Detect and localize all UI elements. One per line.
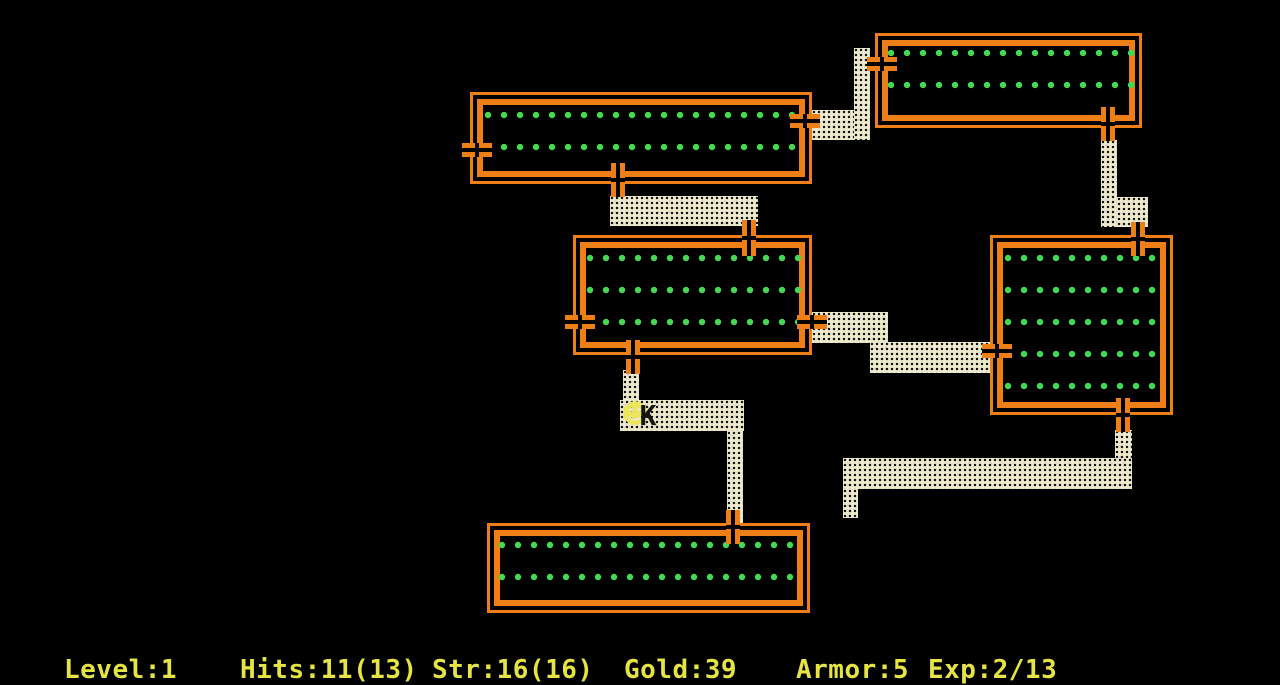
room-south-floor [495, 536, 799, 600]
door [626, 340, 640, 374]
room-top-right-floor [884, 44, 1140, 108]
door [1131, 222, 1145, 256]
status-strength: Str:16(16) [432, 655, 594, 685]
door [742, 220, 756, 256]
door [982, 344, 1012, 358]
door [462, 143, 492, 157]
status-hits: Hits:11(13) [240, 655, 418, 685]
corridor-segment [843, 458, 1132, 489]
status-level: Level:1 [64, 655, 177, 685]
room-center-floor [583, 249, 807, 345]
rogue-game-screen: ☻ K Level:1 Hits:11(13) Str:16(16) Gold:… [0, 0, 1280, 685]
corridor-segment [1101, 140, 1117, 227]
status-armor: Armor:5 [796, 655, 909, 685]
status-gold: Gold:39 [624, 655, 737, 685]
room-east-floor [1001, 249, 1161, 409]
room-top-floor [481, 106, 801, 170]
corridor-segment [843, 489, 858, 518]
door [1101, 107, 1115, 141]
status-bar: Level:1 Hits:11(13) Str:16(16) Gold:39 A… [0, 655, 1280, 685]
door [565, 315, 595, 329]
corridor-segment [1115, 430, 1132, 460]
corridor-segment [610, 196, 758, 226]
door [611, 163, 625, 197]
door [790, 114, 820, 128]
corridor-segment [870, 342, 990, 373]
door [726, 510, 740, 544]
door [1116, 398, 1130, 432]
monster-kestrel: K [638, 400, 658, 432]
door [867, 57, 897, 71]
door [797, 315, 827, 329]
status-experience: Exp:2/13 [928, 655, 1057, 685]
